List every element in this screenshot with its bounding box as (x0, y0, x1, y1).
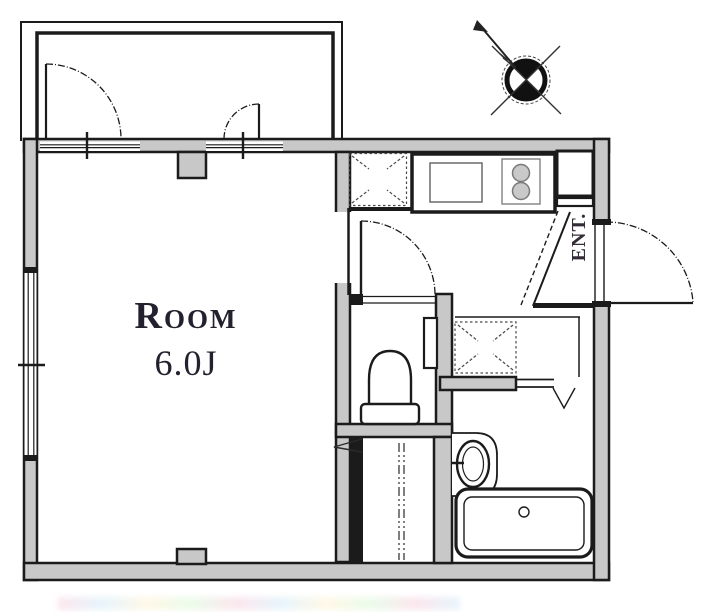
bathroom-door-mark (553, 388, 575, 408)
burner-icon (513, 165, 530, 182)
refrigerator-space (350, 154, 407, 206)
genkan-step-edge (533, 303, 593, 308)
pillar-top (178, 152, 206, 178)
wall-stub-toilet-top (350, 294, 363, 305)
window-top-left (40, 142, 140, 152)
entrance-label: ENT. (554, 212, 604, 262)
bathroom (452, 433, 592, 557)
balcony (21, 22, 342, 141)
room-size-label: 6.0J (76, 342, 296, 384)
floor-plan: Room 6.0J ENT. (0, 0, 705, 612)
compass-icon (473, 20, 561, 115)
wall-strip-left (350, 437, 363, 563)
kitchen (350, 151, 594, 212)
burner-icon (513, 183, 530, 200)
watermark-strip (58, 597, 460, 610)
lavatory-lines (455, 317, 580, 408)
north-arrow (482, 28, 516, 68)
balcony-inner-rail (37, 33, 333, 141)
pillar-bottom (177, 549, 206, 564)
room-doorway (335, 208, 352, 295)
wall-bath-left (434, 437, 452, 563)
entrance (521, 211, 693, 307)
balcony-outer-rail (21, 22, 342, 141)
shoe-cabinet (557, 151, 593, 196)
toilet-room (361, 318, 437, 424)
wall-toilet-right (436, 294, 452, 437)
balcony-door-left-swing (46, 64, 121, 139)
wall-bottom (24, 563, 609, 580)
wall-laundry-bottom (440, 377, 516, 390)
bathtub-drain (519, 507, 529, 517)
entrance-door-swing (606, 222, 693, 302)
room-label: Room (76, 294, 296, 338)
balcony-door-right-swing (224, 104, 259, 139)
toilet-tank (361, 404, 419, 424)
wall-toilet-bottom (336, 424, 452, 437)
toilet-icon (369, 351, 411, 406)
window-top-right (206, 142, 283, 152)
north-arrow-head (473, 20, 488, 32)
sink-icon (430, 163, 482, 202)
shoe-cabinet-shelf (557, 198, 593, 206)
toilet-door-swing (361, 221, 435, 295)
toilet-shelf (424, 318, 437, 368)
laundry-area (455, 322, 516, 373)
toilet-door (361, 221, 435, 303)
wall-right (594, 139, 609, 580)
